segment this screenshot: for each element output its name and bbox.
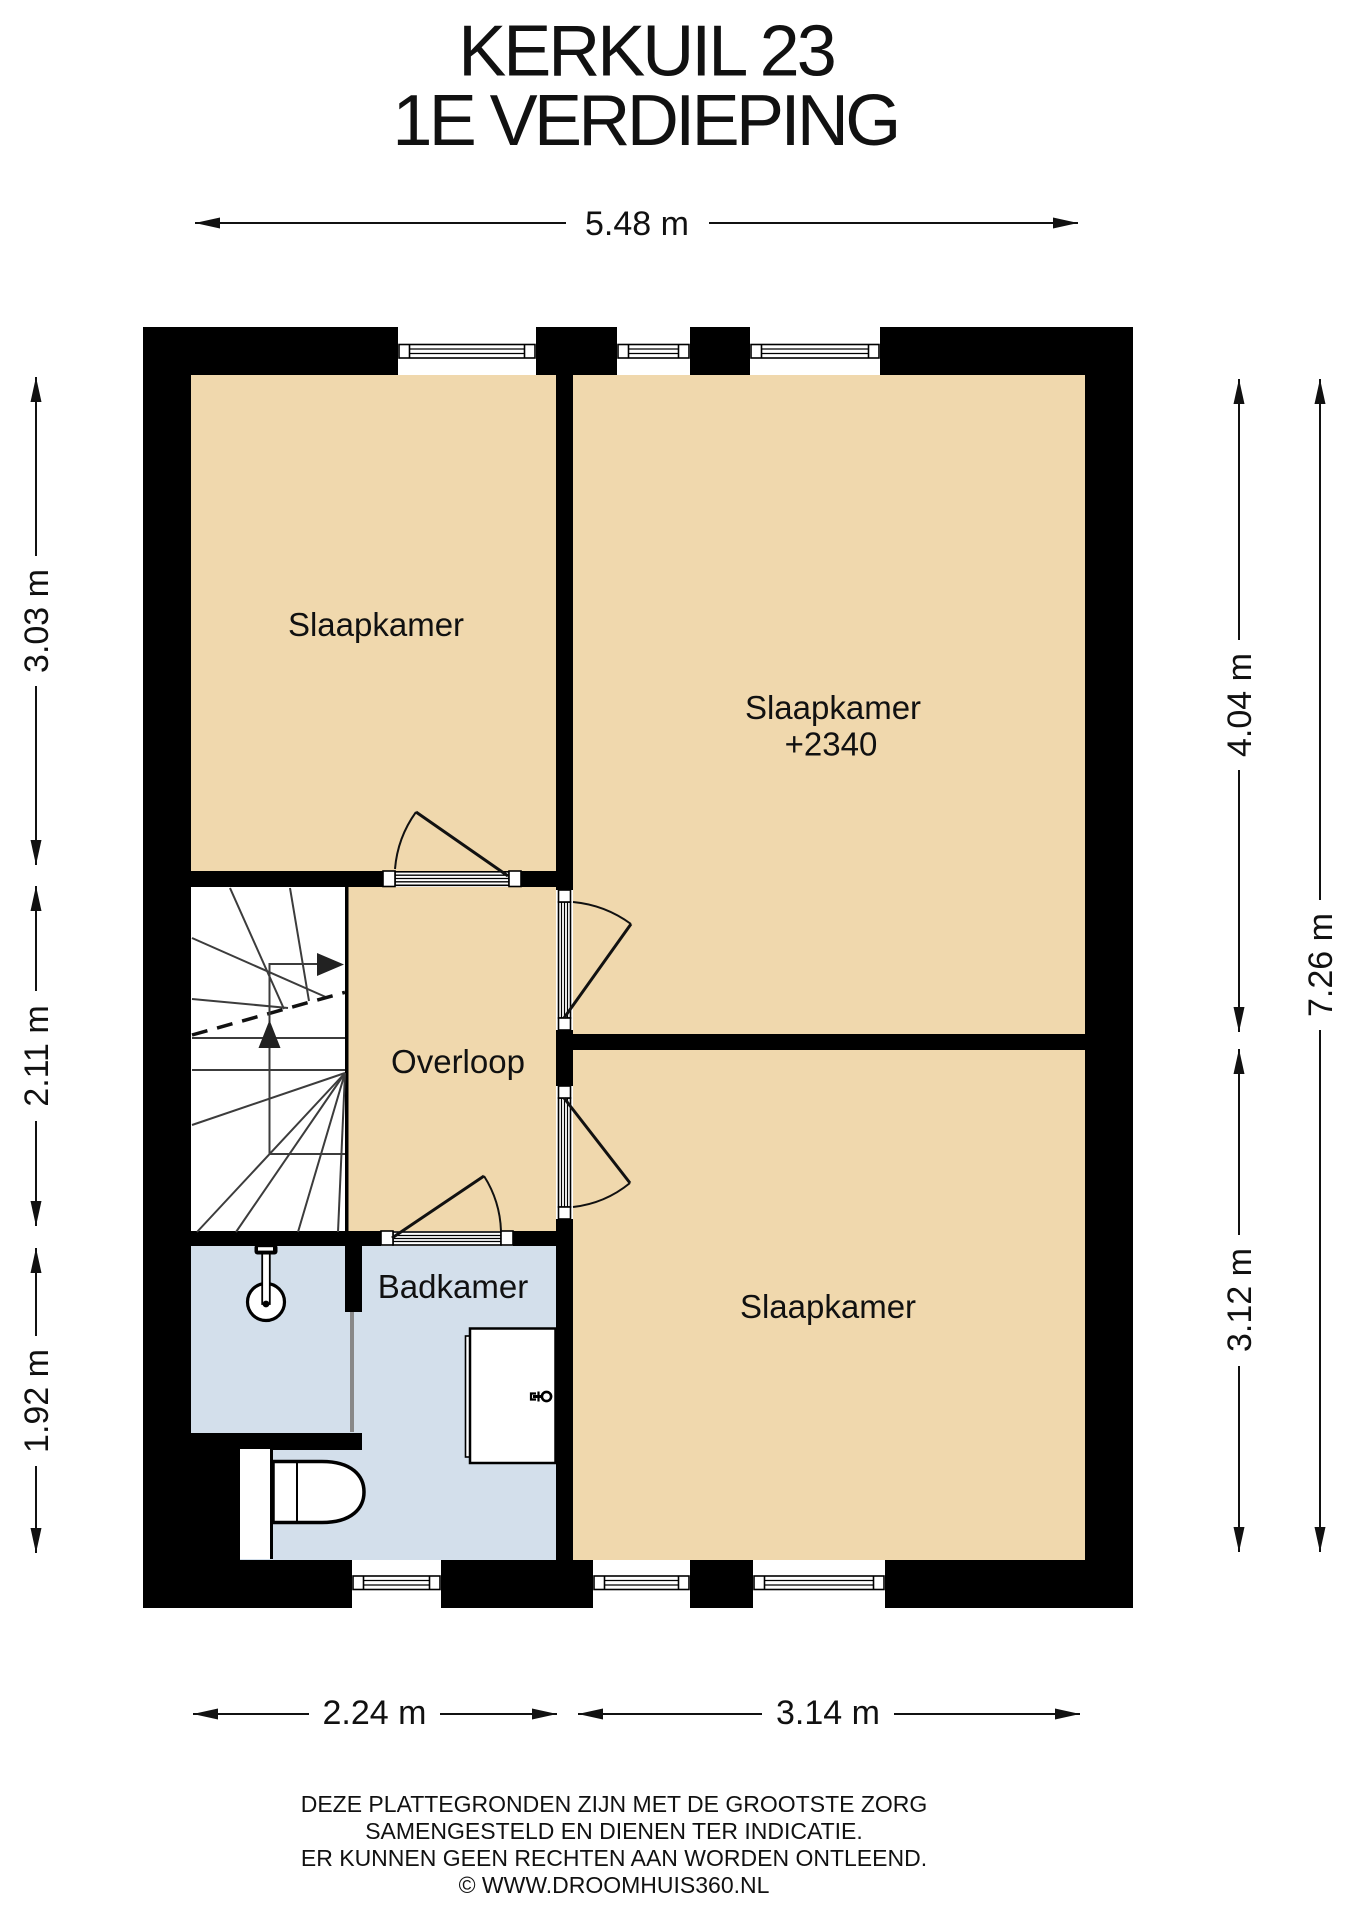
svg-text:5.48 m: 5.48 m	[585, 205, 689, 243]
svg-text:Overloop: Overloop	[391, 1043, 525, 1080]
svg-text:3.14 m: 3.14 m	[776, 1694, 880, 1732]
svg-text:2.11 m: 2.11 m	[18, 1005, 56, 1106]
svg-text:+2340: +2340	[785, 726, 878, 763]
svg-text:© WWW.DROOMHUIS360.NL: © WWW.DROOMHUIS360.NL	[459, 1872, 770, 1898]
svg-text:1.92 m: 1.92 m	[18, 1349, 56, 1453]
svg-text:4.04 m: 4.04 m	[1221, 653, 1259, 757]
svg-text:Slaapkamer: Slaapkamer	[745, 689, 921, 726]
svg-text:SAMENGESTELD EN DIENEN TER IND: SAMENGESTELD EN DIENEN TER INDICATIE.	[365, 1818, 863, 1844]
svg-text:1E VERDIEPING: 1E VERDIEPING	[392, 81, 897, 161]
svg-text:Badkamer: Badkamer	[378, 1268, 528, 1305]
svg-text:3.03 m: 3.03 m	[18, 569, 56, 673]
svg-text:3.12 m: 3.12 m	[1221, 1248, 1259, 1352]
svg-text:KERKUIL 23: KERKUIL 23	[458, 12, 834, 92]
svg-text:Slaapkamer: Slaapkamer	[740, 1288, 916, 1325]
svg-text:2.24 m: 2.24 m	[323, 1694, 427, 1732]
svg-text:7.26 m: 7.26 m	[1302, 913, 1340, 1017]
svg-text:DEZE PLATTEGRONDEN ZIJN MET DE: DEZE PLATTEGRONDEN ZIJN MET DE GROOTSTE …	[301, 1791, 928, 1817]
svg-text:ER KUNNEN GEEN RECHTEN AAN WOR: ER KUNNEN GEEN RECHTEN AAN WORDEN ONTLEE…	[301, 1845, 927, 1871]
svg-text:Slaapkamer: Slaapkamer	[288, 606, 464, 643]
